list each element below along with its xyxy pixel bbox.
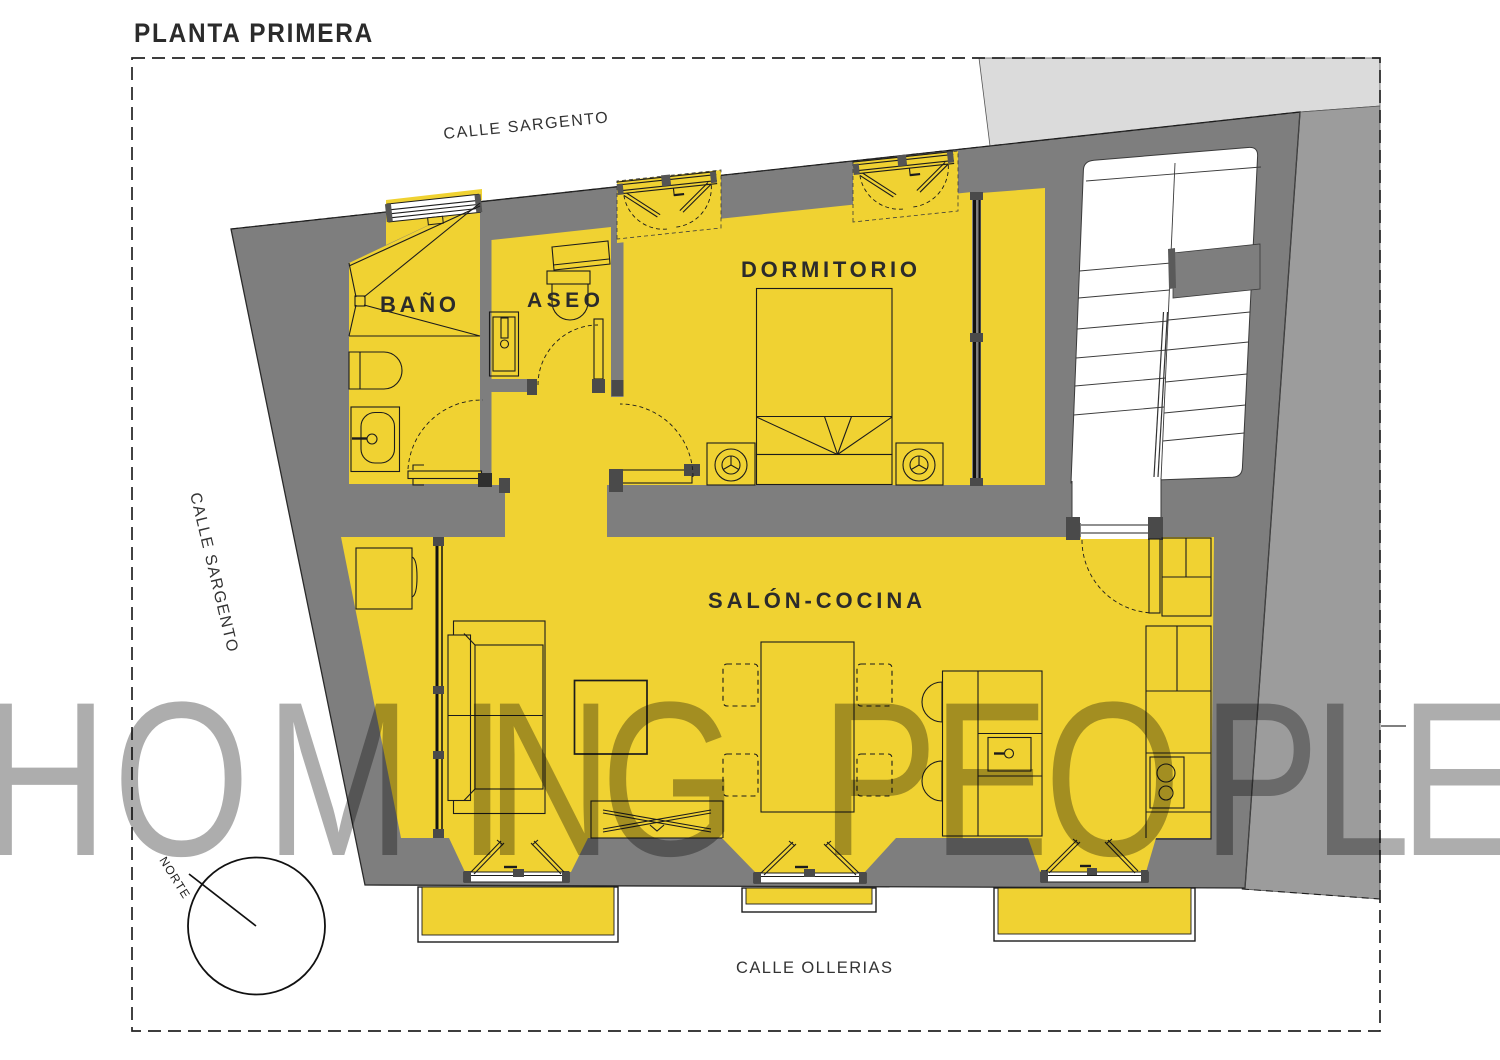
svg-text:SALÓN-COCINA: SALÓN-COCINA — [708, 588, 922, 613]
svg-text:CALLE OLLERIAS: CALLE OLLERIAS — [736, 959, 892, 977]
svg-text:DORMITORIO: DORMITORIO — [741, 257, 917, 282]
svg-text:PLANTA PRIMERA: PLANTA PRIMERA — [134, 19, 372, 48]
